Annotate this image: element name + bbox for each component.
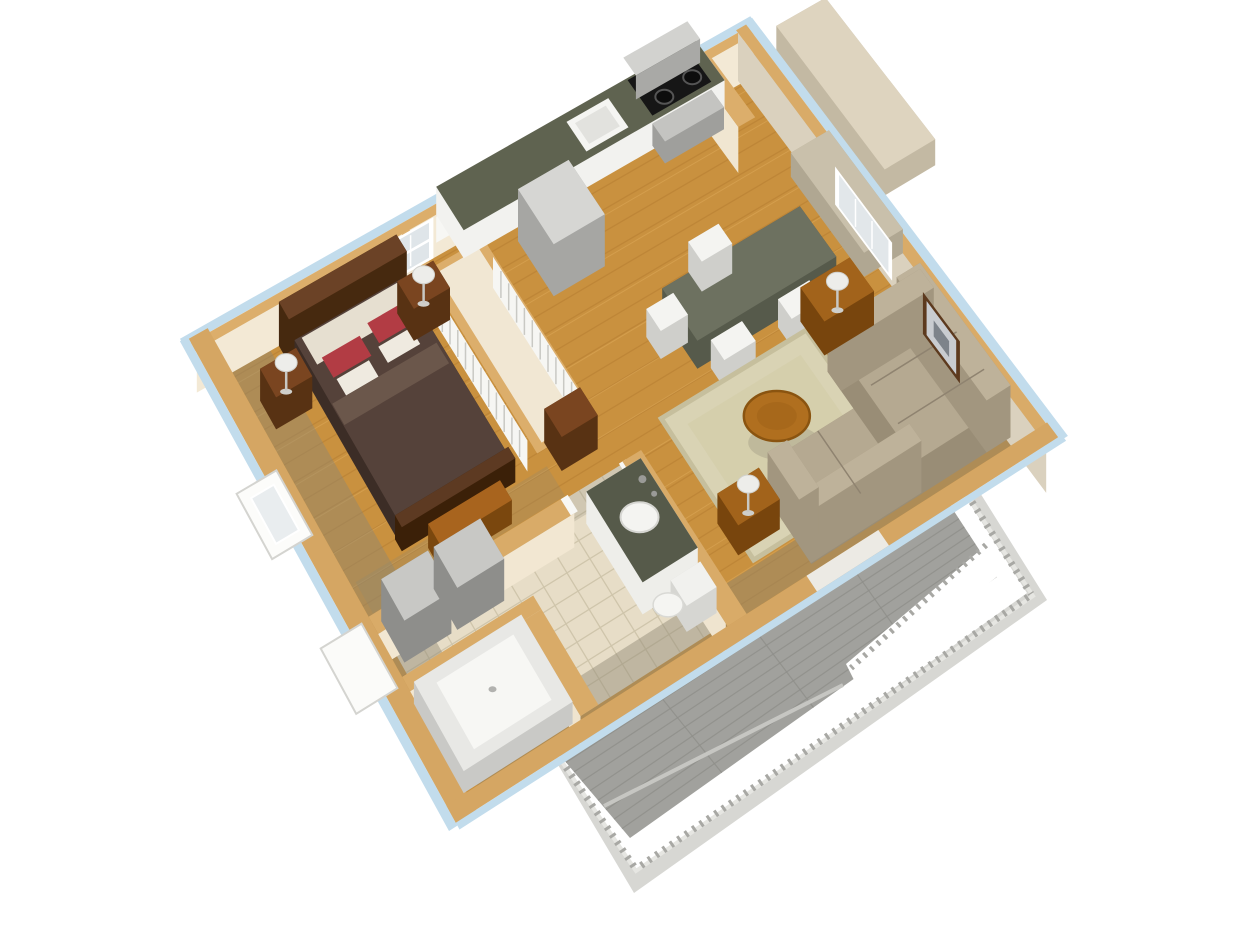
nightstand-right-lamp-shade: [413, 266, 435, 284]
console-lamp-shade: [826, 272, 848, 290]
end-table-lamp-shade: [737, 475, 759, 493]
vanity-faucet-handle: [651, 491, 657, 497]
vanity-faucet: [638, 475, 646, 483]
toilet-bowl: [653, 593, 683, 617]
stove-burner-3: [655, 90, 673, 104]
bathtub-drain: [489, 686, 497, 692]
nightstand-left-lamp-shade: [275, 354, 297, 372]
vanity-sink: [621, 502, 659, 532]
floor-plan-svg: [0, 0, 1255, 941]
stove-burner-4: [683, 70, 701, 84]
coffee-table-grain: [757, 402, 797, 430]
floor-plan-3d-render: [0, 0, 1255, 941]
